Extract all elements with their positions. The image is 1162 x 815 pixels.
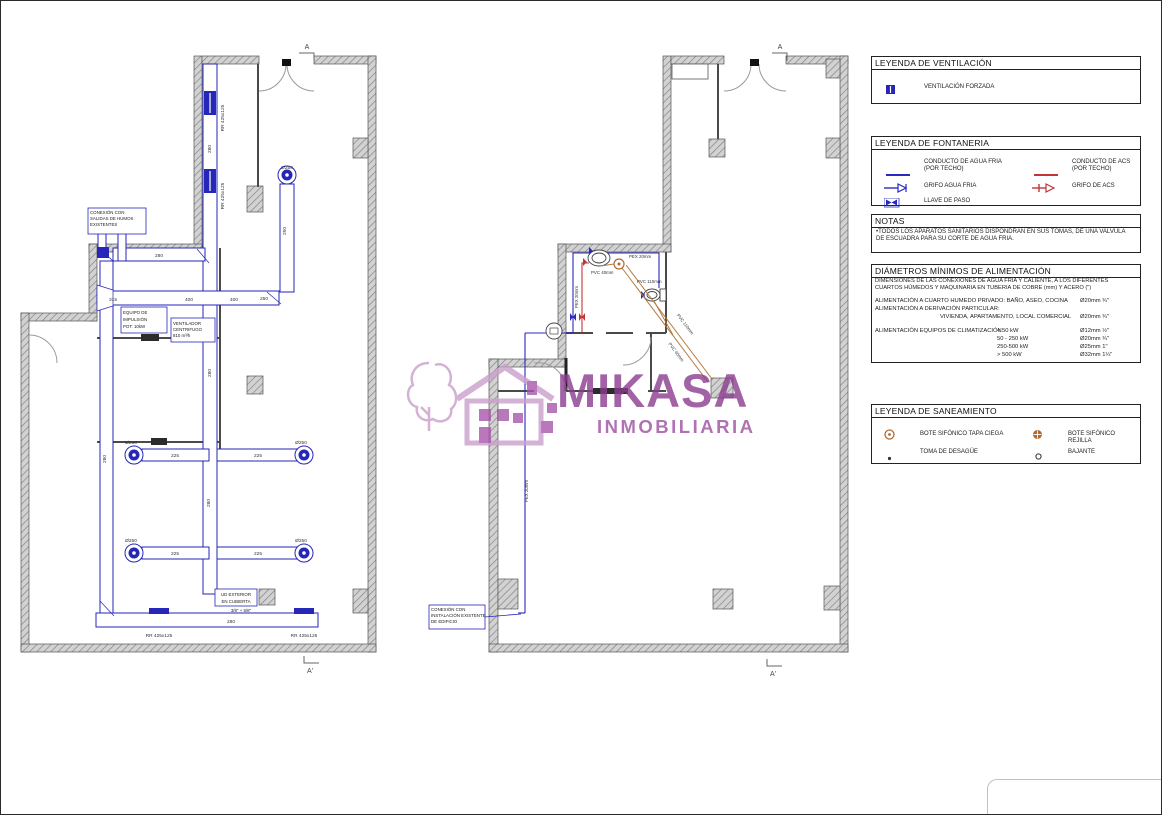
round-diffuser — [125, 446, 143, 464]
legend-item-label: VENTILACIÓN FORZADA — [924, 84, 994, 91]
dim-label: 400 — [230, 297, 238, 303]
legend-title: LEYENDA DE FONTANERIA — [872, 137, 1140, 150]
diameter-row-value: Ø20mm ¾" — [1080, 314, 1109, 320]
drain-outlet-icon — [887, 448, 892, 466]
walls-left-plan — [21, 56, 376, 652]
shutoff-valve-icon — [884, 195, 900, 213]
diffuser-label: Ø250 — [281, 165, 293, 171]
dim-label: 280 — [227, 619, 235, 625]
clim-value: Ø12mm ½" — [1080, 328, 1109, 334]
clim-value: Ø25mm 1" — [1080, 344, 1108, 350]
section-marker-top-right: A — [772, 44, 787, 61]
grille-label: RR 425x125 — [220, 182, 226, 209]
dim-label: 250 — [282, 227, 288, 235]
round-diffuser — [295, 544, 313, 562]
dim-label: 400 — [185, 297, 193, 303]
legend-title: DIÁMETROS MÍNIMOS DE ALIMENTACIÓN — [872, 265, 1140, 278]
callout-line: CONEXIÓN CON — [90, 210, 124, 215]
drawing-sheet: 280 280 280 280 250 RR 425x125 RR 425x12… — [0, 0, 1162, 815]
dim-label: 280 — [206, 499, 212, 507]
diameter-row-value: Ø20mm ¾" — [1080, 298, 1109, 304]
round-diffuser — [125, 544, 143, 562]
dim-label: 250 — [260, 296, 268, 302]
svg-text:A: A — [305, 44, 310, 51]
callout-outdoor-unit: UD EXTERIOR EN CUBIERTA 3/8" + 5/8" — [215, 589, 257, 613]
return-grille — [149, 608, 169, 614]
walls-right-plan — [489, 56, 848, 652]
legend-ventilation: LEYENDA DE VENTILACIÓN VENTILACIÓN FORZA… — [871, 56, 1141, 104]
dim-label: 225 — [254, 551, 262, 557]
plan-ventilation: 280 280 280 280 250 RR 425x125 RR 425x12… — [21, 44, 376, 675]
interior-walls-right — [498, 59, 786, 394]
callout-line: EN CUBIERTA — [221, 599, 250, 604]
legend-min-diameters: DIÁMETROS MÍNIMOS DE ALIMENTACIÓN DIMENS… — [871, 264, 1141, 363]
blank-corner-overlay — [987, 779, 1162, 815]
toilet — [641, 289, 666, 301]
clim-range: < 50 kW — [997, 328, 1018, 334]
svg-text:A': A' — [770, 671, 776, 678]
hot-tap-icon — [583, 258, 587, 266]
grille-label: RR 425x125 — [291, 633, 318, 639]
dim-label: 225 — [171, 453, 179, 459]
section-marker-bottom-right: A' — [767, 659, 782, 678]
dim-label: 225 — [171, 551, 179, 557]
callout-line: EQUIPO DE — [123, 310, 147, 315]
callout-line: DE EDIFICIO — [431, 619, 458, 624]
notes-title: NOTAS — [872, 215, 1140, 228]
dim-label: 280 — [207, 145, 213, 153]
diameter-row-label: ALIMENTACIÓN A DERIVACIÓN PARTICULAR: — [875, 306, 1000, 312]
callout-line: VENTILADOR — [173, 321, 201, 326]
dim-label: 225 — [254, 453, 262, 459]
water-meter — [546, 323, 562, 339]
legend-item-label: CONDUCTO DE ACS (POR TECHO) — [1072, 159, 1162, 172]
pipe-label: PVC 110mm — [676, 313, 695, 336]
callout-line: 810 m³/h — [173, 333, 191, 338]
callout-smoke-connection: CONEXIÓN CON SALIDAS DE HUMOS EXISTENTES — [88, 208, 146, 234]
diffuser-label: Ø250 — [295, 538, 307, 544]
callout-line: IMPULSIÓN — [123, 317, 147, 322]
plumbing-network: PVC 40mm PVC 110mm PEX 20mm PEX 20mm PEX… — [518, 247, 712, 613]
section-cut-mark — [750, 59, 759, 66]
legend-item-label: GRIFO DE ACS — [1072, 183, 1115, 190]
legend-sanitation: LEYENDA DE SANEAMIENTO BOTE SIFÓNICO TAP… — [871, 404, 1141, 464]
callout-line: CONEXIÓN CON — [431, 607, 465, 612]
clim-range: 50 - 250 kW — [997, 336, 1028, 342]
svg-text:A': A' — [307, 668, 313, 675]
legend-item-label: BOTE SIFÓNICO TAPA CIEGA — [920, 431, 1003, 438]
hot-water-tap-icon — [1032, 180, 1058, 198]
dim-label: 280 — [207, 369, 213, 377]
section-cut-mark — [282, 59, 291, 66]
legend-title: LEYENDA DE SANEAMIENTO — [872, 405, 1140, 418]
dim-label: 280 — [155, 253, 163, 259]
siphon-box — [614, 259, 624, 269]
round-diffuser — [295, 446, 313, 464]
callout-line: POT: 10kW — [123, 324, 146, 329]
callout-centrifugal-fan: VENTILADOR CENTRIFUGO 810 m³/h — [171, 318, 215, 342]
pipe-label: PEX 20mm — [574, 286, 579, 309]
climatization-label: ALIMENTACIÓN EQUIPOS DE CLIMATIZACIÓN — [875, 328, 1002, 334]
callout-line: SALIDAS DE HUMOS — [90, 216, 133, 221]
smoke-outlet-grille — [97, 247, 109, 258]
pipe-label: PVC 110mm — [637, 279, 662, 284]
pipe-label: PVC 40mm — [591, 270, 614, 275]
forced-ventilation-grille-icon — [886, 81, 895, 99]
callout-line: EXISTENTES — [90, 222, 117, 227]
dim-label: 315 — [109, 297, 117, 303]
diffuser-label: Ø250 — [125, 440, 137, 446]
callout-line: INSTALACIÓN EXISTENTE — [431, 613, 486, 618]
dim-label: 280 — [102, 455, 108, 463]
legend-item-label: TOMA DE DESAGÜE — [920, 449, 978, 456]
legend-item-label: LLAVE DE PASO — [924, 198, 970, 205]
legend-item-label: BOTE SIFÓNICO REJILLA — [1068, 431, 1140, 444]
svg-text:A: A — [778, 44, 783, 51]
callout-line: UD EXTERIOR — [221, 592, 251, 597]
return-grille — [294, 608, 314, 614]
legend-plumbing: LEYENDA DE FONTANERIA CONDUCTO DE AGUA F… — [871, 136, 1141, 206]
callout-line: CENTRIFUGO — [173, 327, 203, 332]
diffuser-label: Ø250 — [295, 440, 307, 446]
siphon-box-grille-icon — [1032, 427, 1043, 445]
pipe-label: PEX 20mm — [524, 480, 529, 503]
clim-range: > 500 kW — [997, 352, 1022, 358]
downpipe-icon — [1035, 447, 1042, 465]
diffuser-label: Ø250 — [125, 538, 137, 544]
section-marker-top-left: A — [299, 44, 314, 61]
diameters-subtitle: DIMENSIONES DE LAS CONEXIONES DE AGUA FR… — [875, 278, 1137, 291]
callout-impulsion-unit: EQUIPO DE IMPULSIÓN POT: 10kW — [121, 307, 167, 333]
grille-label: RR 425x125 — [220, 104, 226, 131]
pipe-label: PVC 40mm — [667, 342, 685, 363]
clim-value: Ø20mm ¾" — [1080, 336, 1109, 342]
diameter-row-label: ALIMENTACIÓN A CUARTO HUMEDO PRIVADO: BA… — [875, 298, 1068, 304]
clim-value: Ø32mm 1¼" — [1080, 352, 1112, 358]
plan-plumbing: PVC 40mm PVC 110mm PEX 20mm PEX 20mm PEX… — [429, 44, 848, 678]
notes-text: •TODOS LOS APARATOS SANITARIOS DISPONDRA… — [876, 229, 1134, 243]
legend-item-label: GRIFO AGUA FRIA — [924, 183, 976, 190]
diameter-row-label: VIVIENDA, APARTAMENTO, LOCAL COMERCIAL — [940, 314, 1071, 320]
notes-box: NOTAS •TODOS LOS APARATOS SANITARIOS DIS… — [871, 214, 1141, 253]
legend-title: LEYENDA DE VENTILACIÓN — [872, 57, 1140, 70]
pipe-label: PEX 20mm — [629, 254, 652, 259]
legend-item-label: BAJANTE — [1068, 449, 1095, 456]
siphon-box-blind-cover-icon — [884, 427, 895, 445]
clim-range: 250-500 kW — [997, 344, 1028, 350]
refrigerant-lines-label: 3/8" + 5/8" — [231, 608, 252, 613]
legend-item-label: CONDUCTO DE AGUA FRIA (POR TECHO) — [924, 159, 1024, 172]
section-marker-bottom-left: A' — [304, 656, 319, 675]
grille-label: RR 425x125 — [146, 633, 173, 639]
